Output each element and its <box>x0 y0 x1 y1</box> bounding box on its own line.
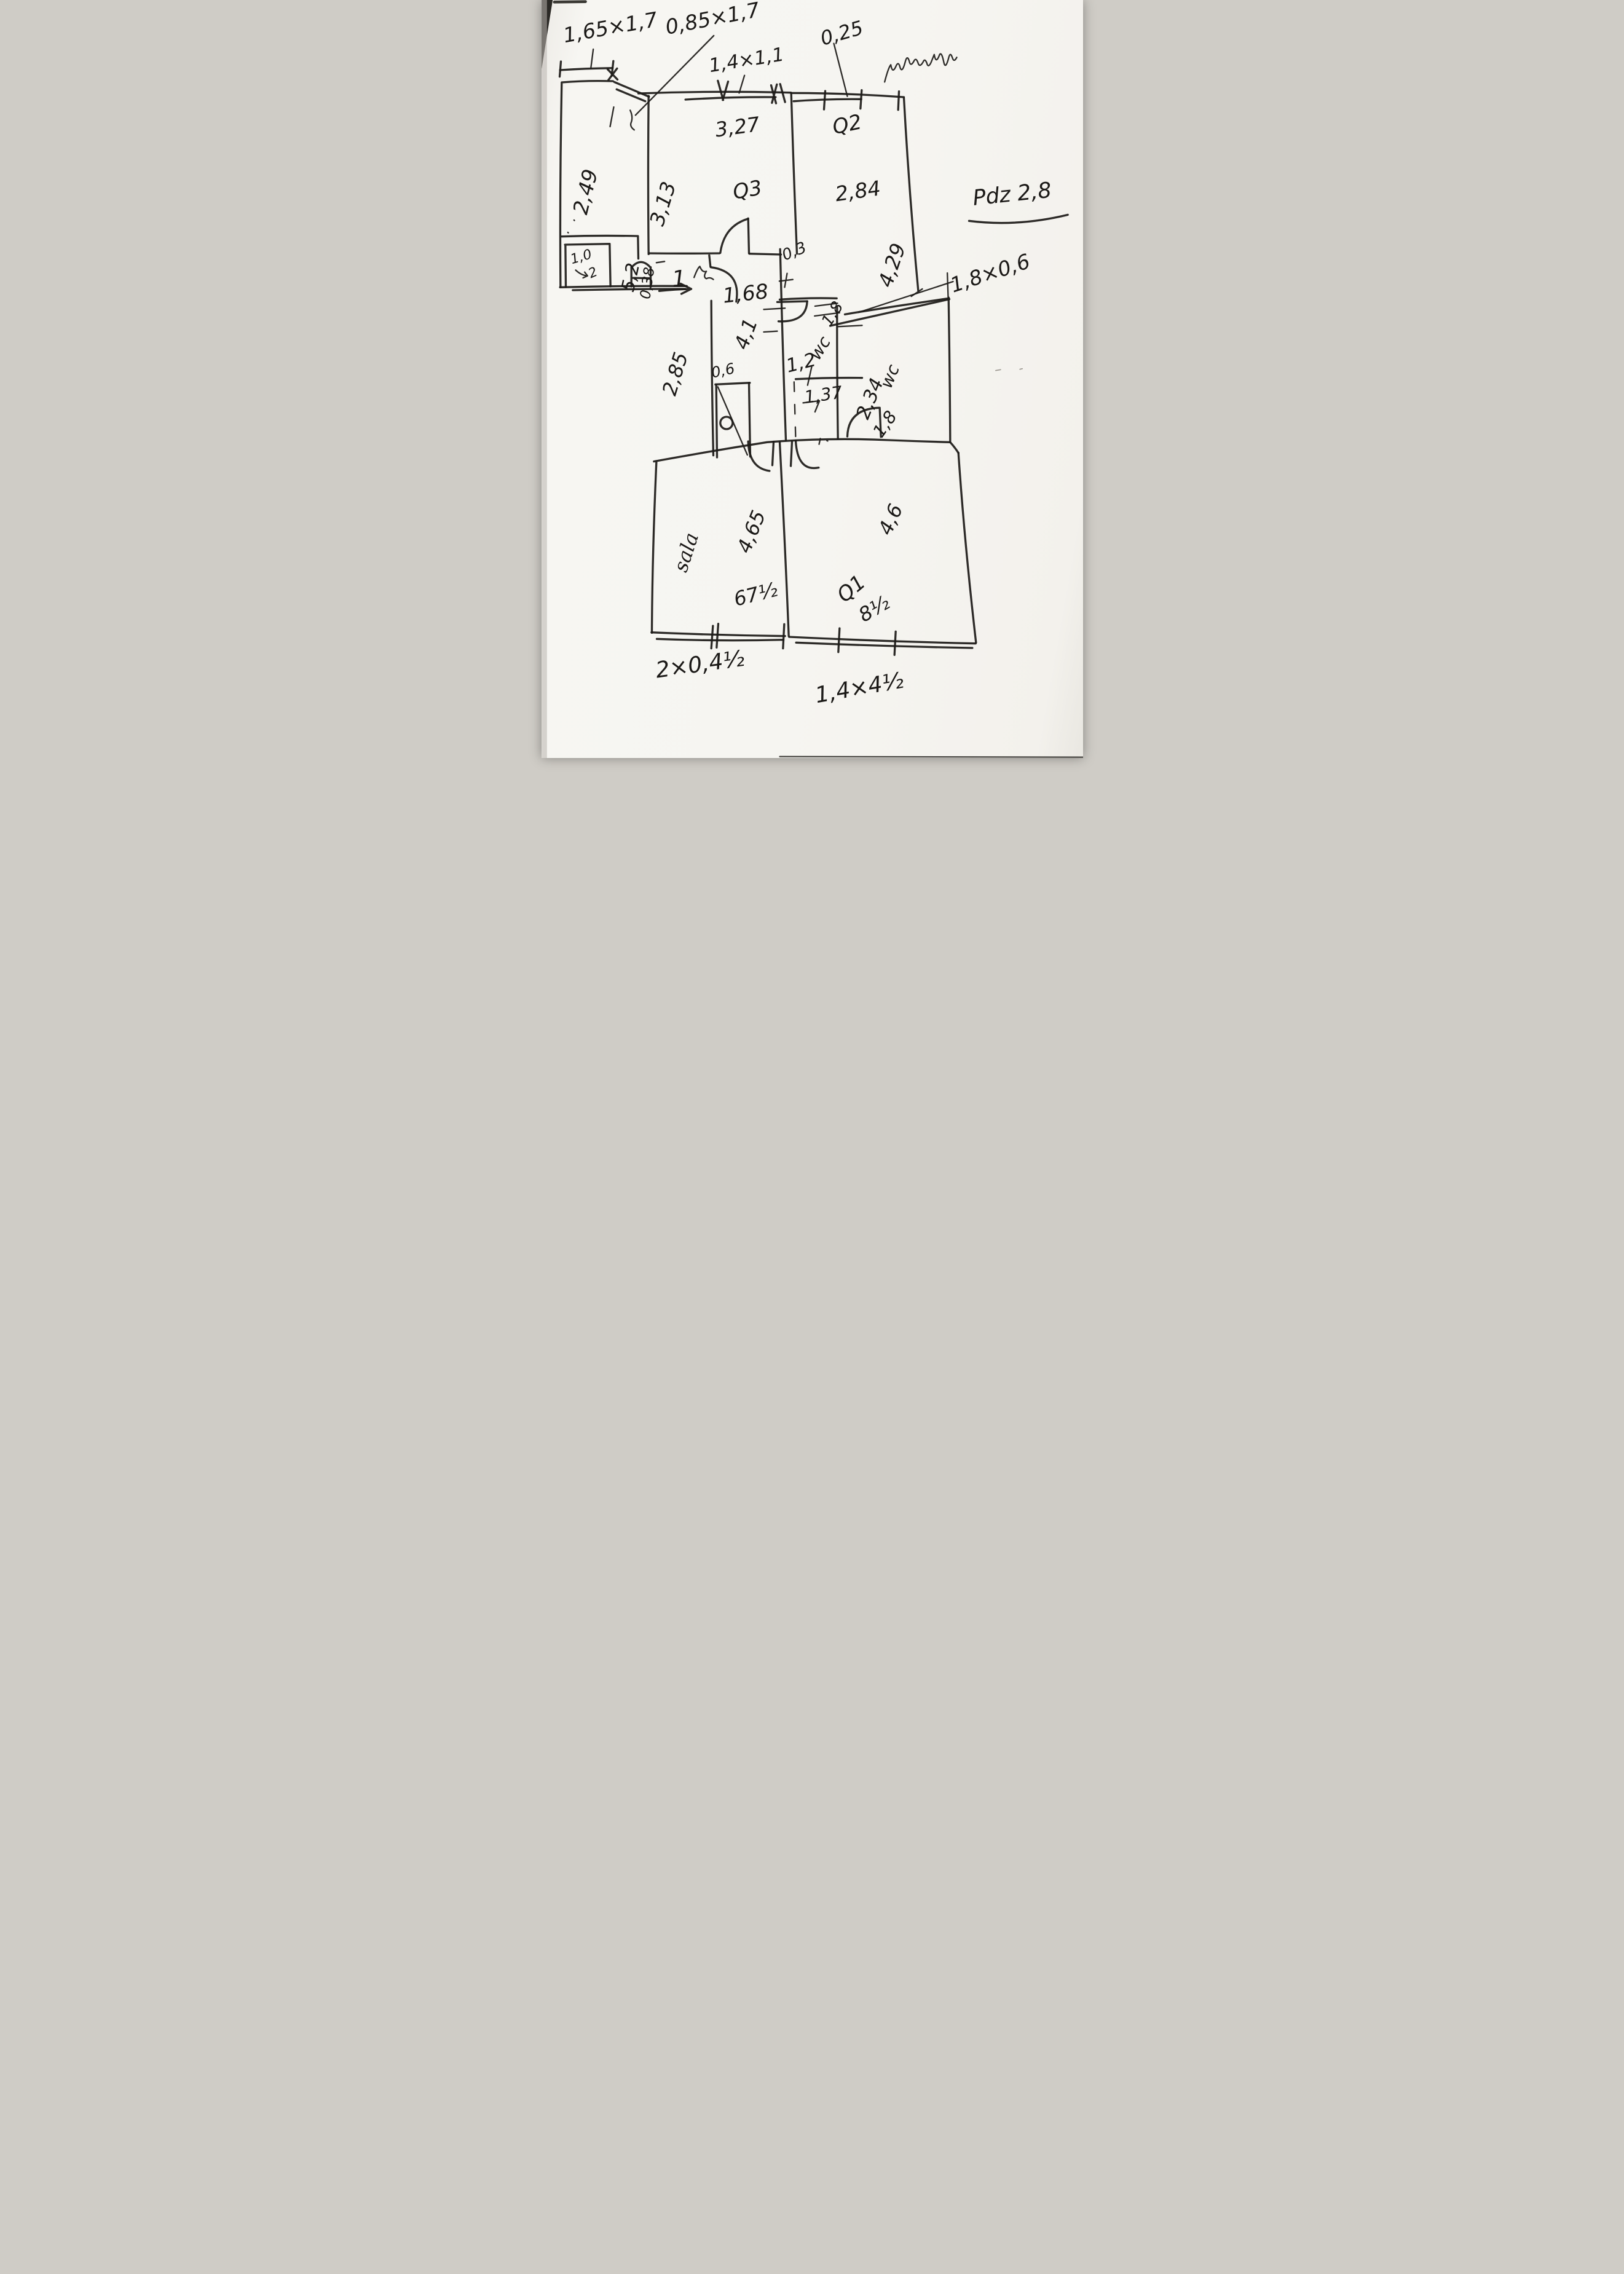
dim-tick-left <box>559 61 561 77</box>
pointer-to-025-label <box>834 44 847 97</box>
dim-q2-depth: 4,29 <box>873 240 910 290</box>
dim-q1-window: 1,4×4½ <box>813 668 905 709</box>
left-edge-shade <box>542 0 547 758</box>
dim-wcb-niche: 1,8×0,6 <box>947 249 1032 297</box>
nook-dots <box>567 220 574 233</box>
q3-door-arc <box>720 219 747 253</box>
note-sala: 67½ <box>731 578 779 611</box>
band-door1-arc <box>748 441 770 471</box>
note-underline <box>969 215 1068 223</box>
closet-top <box>715 383 749 385</box>
hall-right-wall <box>780 249 786 440</box>
jog-squiggle <box>630 110 634 130</box>
q3-q2-shared-wall <box>791 93 797 253</box>
left-q3-shared-wall <box>648 96 648 254</box>
sala-bottom-wall-2 <box>656 639 783 640</box>
wcb-niche-pointer <box>859 282 953 312</box>
hall-left-wall <box>709 255 713 455</box>
dim-hall-length: 4,1 <box>729 315 762 353</box>
dim-wall-note: 0,25 <box>818 17 865 50</box>
wca-top-wall <box>779 298 837 299</box>
sala-left-wall <box>652 462 656 633</box>
illegible-scribble-word <box>885 54 956 82</box>
top-edge-mark <box>554 2 585 2</box>
wcb-shelf-line <box>838 325 862 326</box>
dashed-partition <box>794 382 795 440</box>
labels: 1,65×1,7 0,85×1,7 1,4×1,1 0,25 Pdz 2,8 2… <box>561 0 1052 708</box>
jamb-dim-ticks <box>656 261 664 263</box>
band-door2-arc <box>795 441 818 468</box>
dim-window-c: 1,4×1,1 <box>707 44 785 77</box>
q3-bottom-wall <box>648 253 781 255</box>
q3-window-leader <box>739 76 744 93</box>
dim-door-width: 1 <box>671 265 687 293</box>
q3-door-leaf <box>748 218 749 253</box>
nook-arrow <box>575 270 587 278</box>
left-room-jog <box>614 82 649 101</box>
dim-q1-depth: 4,6 <box>873 500 907 539</box>
dim-sala-window: 2×0,4½ <box>654 646 746 684</box>
dim-q3-width: 3,27 <box>713 113 761 142</box>
dim-window-a: 1,65×1,7 <box>561 7 660 47</box>
dim-q3-depth: 3,13 <box>645 179 680 229</box>
q1-right-wall <box>958 453 976 643</box>
band-jog-right <box>950 442 958 452</box>
dim-line-topleft <box>560 68 612 70</box>
bottom-edge-line <box>779 757 1082 757</box>
floor-plan-sketch: 1,65×1,7 0,85×1,7 1,4×1,1 0,25 Pdz 2,8 2… <box>542 0 1083 758</box>
note-ceiling-height: Pdz 2,8 <box>971 178 1052 211</box>
dim-hall-gap: 0,3 <box>779 238 809 264</box>
dim-sala-width: 4,65 <box>732 507 770 556</box>
tick-under-x <box>610 107 613 127</box>
door-width-scribble <box>694 266 713 279</box>
dim-leftroom-width: 2,49 <box>568 167 602 216</box>
dim-window-b: 0,85×1,7 <box>663 0 762 39</box>
label-q2: Q2 <box>830 109 864 139</box>
dim-wca-depth: 1,8 <box>818 298 846 330</box>
dim-nook-depth: 2 <box>586 264 600 282</box>
label-sala: sala <box>668 530 703 575</box>
dim-q2-width: 2,84 <box>834 176 882 206</box>
q3-top-wall <box>638 92 790 93</box>
pencil-smudges <box>995 369 1022 371</box>
dim-nook-width: 1,0 <box>569 247 594 267</box>
band-wall <box>653 439 950 461</box>
wcb-right-wall <box>948 298 950 441</box>
dim-hall-recess: 0,6 <box>709 360 736 381</box>
q2-window-line <box>794 99 861 101</box>
q3-window-line <box>685 97 776 100</box>
band-door1-leaf <box>772 442 773 465</box>
pointer-to-085-label <box>635 36 713 115</box>
smudge-1 <box>995 369 1022 371</box>
wcb-wedge-diag <box>830 299 949 326</box>
sketch-canvas: 1,65×1,7 0,85×1,7 1,4×1,1 0,25 Pdz 2,8 2… <box>542 0 1083 758</box>
dim-leader <box>591 49 593 68</box>
sala-q1-divider <box>779 442 789 636</box>
q2-right-wall <box>904 98 918 290</box>
dim-hall-width: 1,68 <box>721 279 769 308</box>
closet-knob <box>720 417 732 429</box>
q3-window-hatch-right <box>771 84 785 103</box>
label-q3: Q3 <box>731 175 763 204</box>
band-door2-leaf <box>790 441 792 466</box>
dim-hall-side: 2,85 <box>657 349 692 398</box>
wca-bottom-dim-wall <box>795 378 862 379</box>
